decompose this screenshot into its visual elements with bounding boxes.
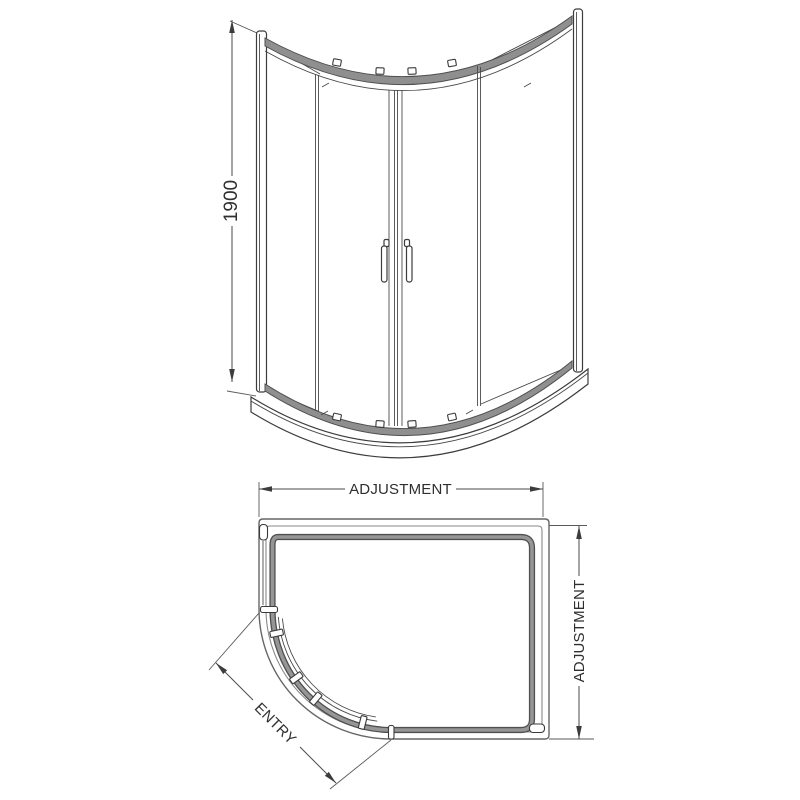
door-stile-bottom	[389, 726, 395, 740]
depth-adjustment-label: ADJUSTMENT	[571, 580, 588, 683]
left-wall-profile	[257, 31, 267, 392]
drawing-svg: 1900	[0, 0, 800, 800]
wall-profile-cap-bottom-right	[530, 724, 545, 733]
door-stile-top	[261, 607, 278, 613]
wall-profile-cap-top-left	[260, 525, 268, 541]
width-adjustment-label: ADJUSTMENT	[349, 481, 452, 498]
right-wall-profile	[574, 9, 583, 372]
tray-outline	[259, 519, 594, 739]
height-dimension-label: 1900	[221, 180, 242, 222]
technical-drawing-canvas: 1900	[0, 0, 800, 800]
